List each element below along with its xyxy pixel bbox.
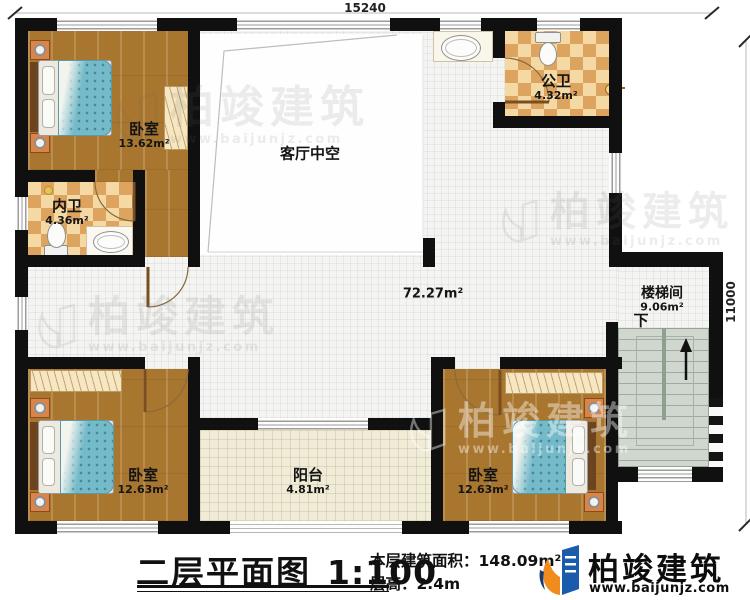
room-label-inner-bath: 内卫 4.36m² <box>45 198 88 228</box>
room-label-balcony: 阳台 4.81m² <box>286 467 329 497</box>
stair-down-label: 下 <box>633 312 648 329</box>
room-label-bedroom2: 卧室 12.63m² <box>457 467 508 497</box>
floor-plan: 柏竣建筑 www.baijunjz.com 柏竣建筑 www.baijunjz.… <box>0 0 750 545</box>
floor-height-label: 层高： <box>370 575 417 593</box>
dimension-tick <box>739 33 750 47</box>
door-arc <box>148 267 188 307</box>
dimension-tick <box>739 517 750 531</box>
floor-height-row: 层高：2.4m <box>370 572 460 594</box>
room-label-bedroom1: 卧室 13.62m² <box>118 121 169 151</box>
dimension-height: 11000 <box>724 281 738 323</box>
annotation-overlay <box>0 0 750 545</box>
room-label-hallway: 72.27m² <box>403 288 463 303</box>
room-label-public-bath: 公卫 4.32m² <box>534 73 577 103</box>
floor-area-label: 本层建筑面积： <box>370 552 479 570</box>
brand-logo-icon <box>538 544 584 596</box>
floor-plan-sheet: 柏竣建筑 www.baijunjz.com 柏竣建筑 www.baijunjz.… <box>0 0 750 600</box>
room-label-living-void: 客厅中空 <box>280 145 340 162</box>
door-arc <box>455 370 500 415</box>
room-label-stairwell: 楼梯间 9.06m² <box>640 286 683 315</box>
stair-arrow-head <box>680 338 692 352</box>
floor-area-row: 本层建筑面积：148.09m² <box>370 549 561 571</box>
door-arc <box>95 182 134 221</box>
dimension-width: 15240 <box>344 1 386 15</box>
title-underline-thin <box>137 591 389 592</box>
door-arc <box>145 369 188 412</box>
brand-url: www.baijunjz.com <box>589 581 730 596</box>
room-label-bedroom3: 卧室 12.63m² <box>117 467 168 497</box>
title-underline <box>137 585 389 588</box>
floor-height-value: 2.4m <box>417 575 461 593</box>
